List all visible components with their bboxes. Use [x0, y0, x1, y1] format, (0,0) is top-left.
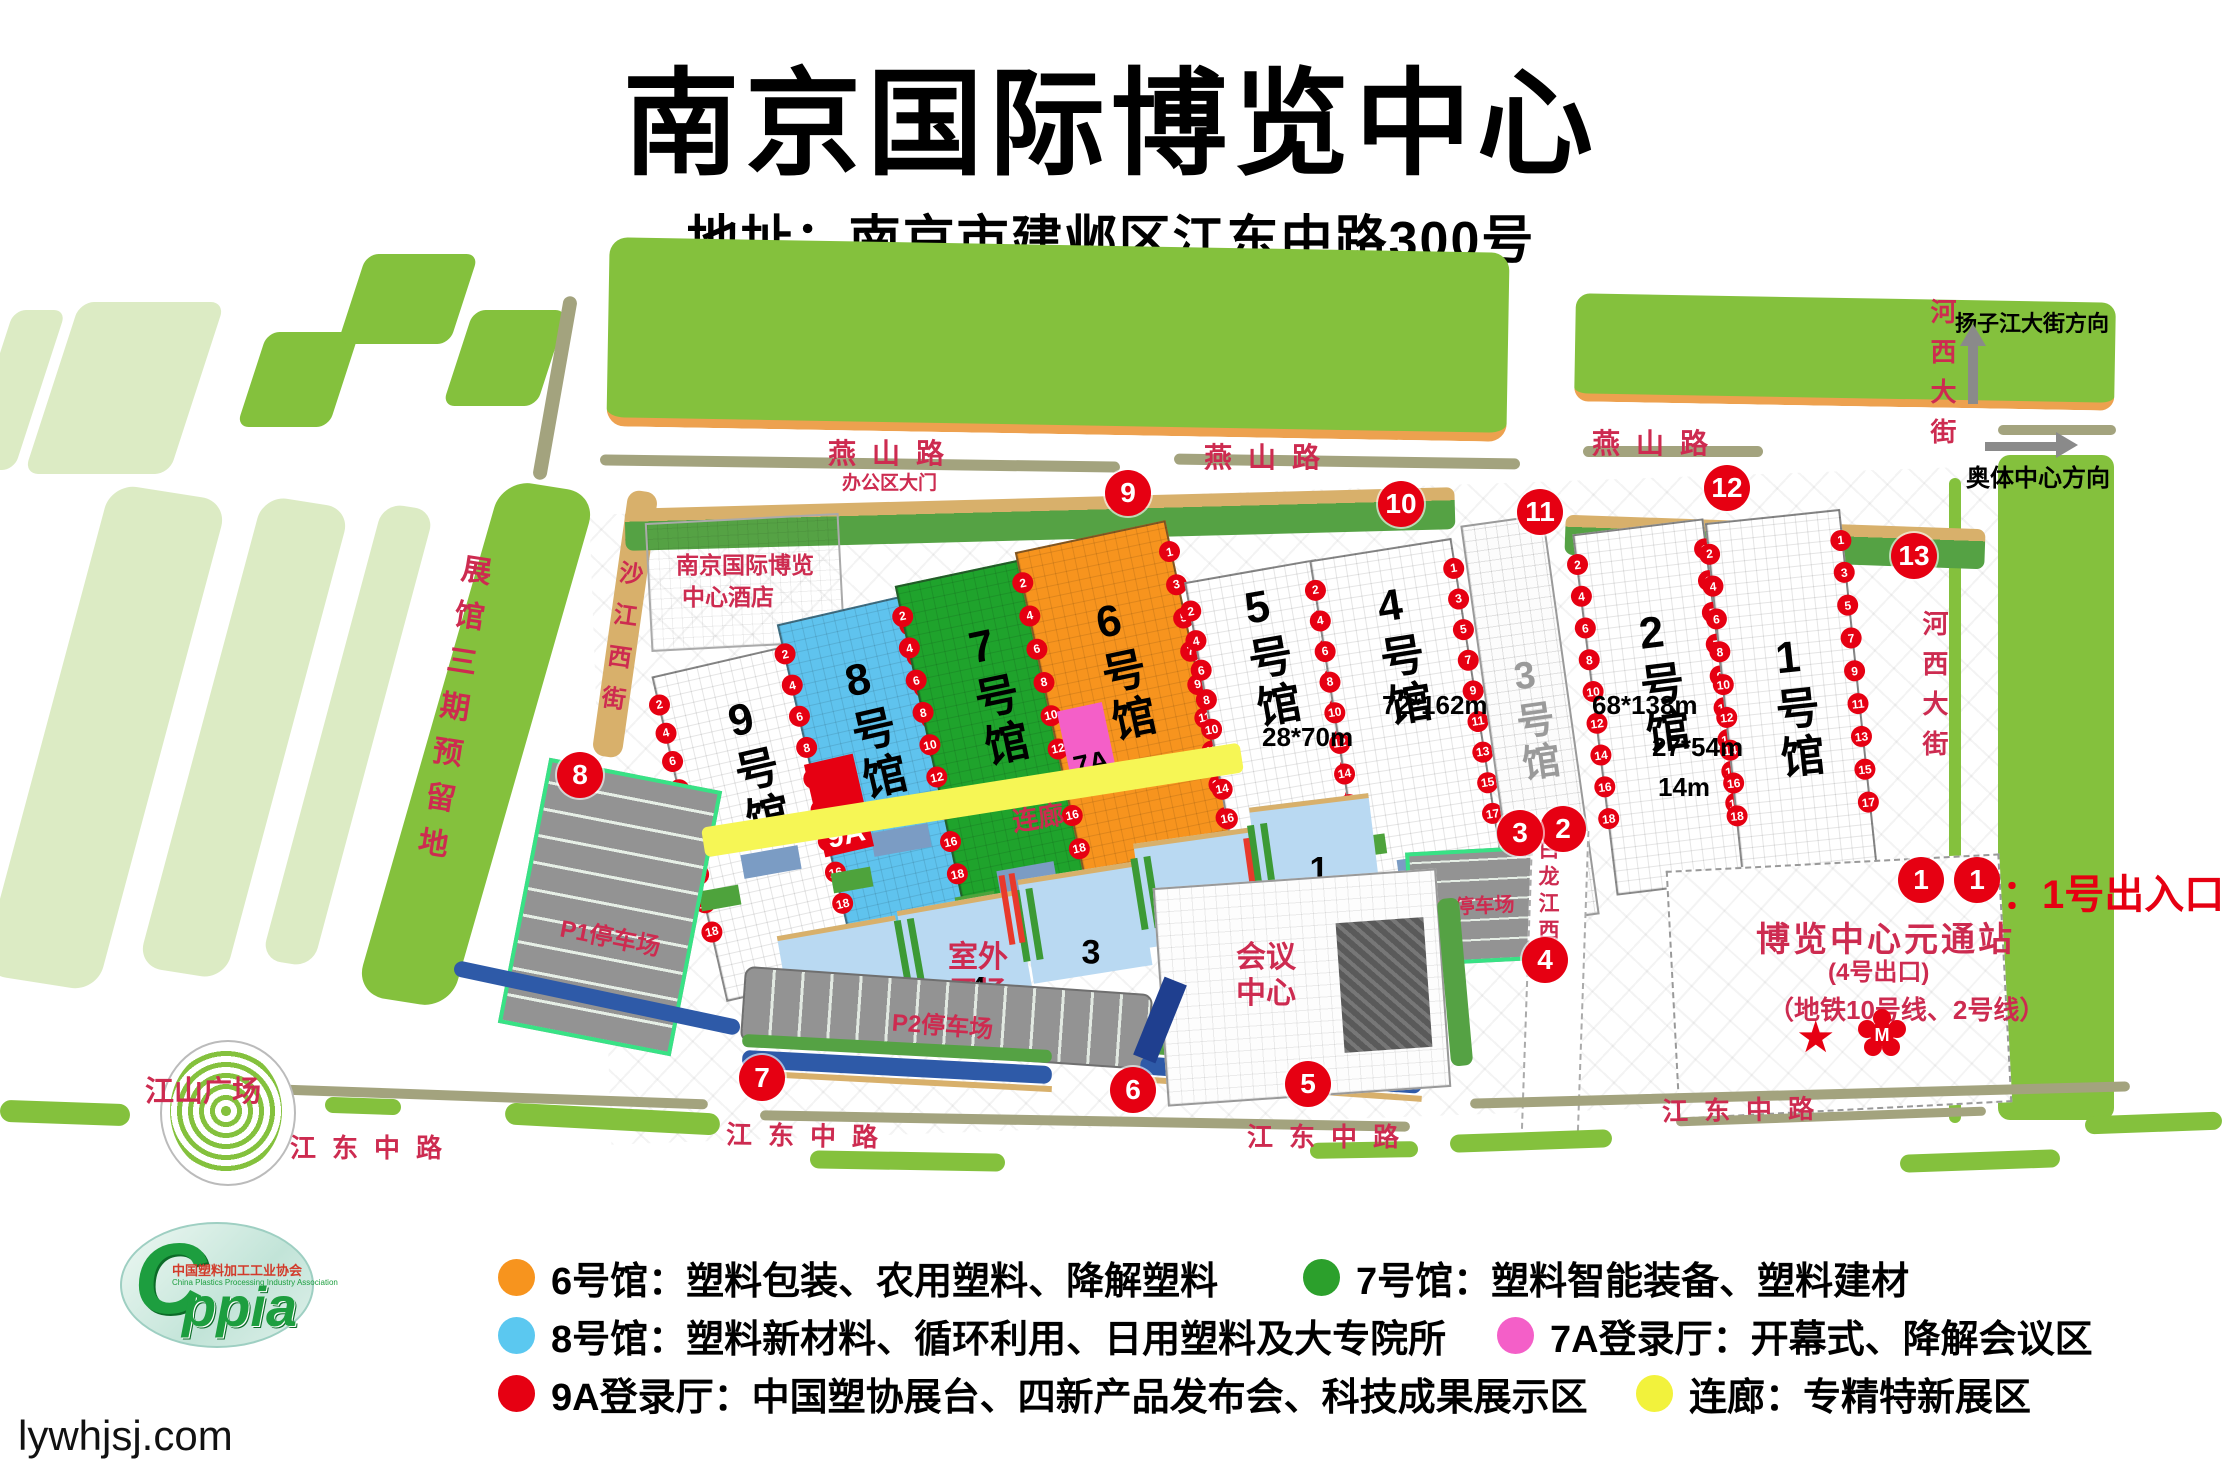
gate-number-dot: 6: [1024, 637, 1049, 662]
station-exit: (4号出口): [1828, 952, 1929, 987]
entrance-marker-12: 12: [1704, 465, 1750, 511]
legend-item-hall9a: 9A登录厅：中国塑协展台、四新产品发布会、科技成果展示区: [498, 1366, 1588, 1421]
map-shape: [606, 237, 1509, 442]
gate-number-dot: 2: [1566, 553, 1589, 576]
hall-5-label: 5号馆: [1230, 579, 1301, 734]
legend-dot-hall7a: [1497, 1317, 1534, 1354]
hall-1-label: 1号馆: [1762, 630, 1824, 783]
gate-number-dot: 1: [1829, 528, 1852, 551]
entrance-marker-4: 4: [1522, 937, 1568, 983]
dim-hall4: 72*162m: [1382, 690, 1488, 721]
gate-number-dot: 17: [1857, 791, 1880, 814]
dim-hall5: 28*70m: [1262, 722, 1353, 753]
gate-number-dot: 6: [1574, 616, 1597, 639]
gate-number-dot: 6: [1705, 608, 1728, 631]
road-label-yanshan-3: 燕山路: [1592, 422, 1724, 462]
gate-number-dot: 1: [1442, 556, 1466, 580]
gate-number-dot: 4: [897, 636, 922, 661]
entrance-marker-5: 5: [1285, 1061, 1331, 1107]
map-shape: [1900, 1149, 2061, 1173]
gate-number-dot: 18: [1067, 836, 1092, 861]
entrance-note-text: ：1号出入口: [2002, 862, 2222, 920]
gate-number-dot: 9: [1843, 660, 1866, 683]
legend-text-hall9a: 9A登录厅：中国塑协展台、四新产品发布会、科技成果展示区: [551, 1366, 1588, 1421]
map-shape: [237, 332, 360, 427]
road-label-yanshan-1: 燕山路: [828, 432, 960, 472]
gate-number-dot: 7: [1456, 648, 1480, 672]
legend-text-hall6: 6号馆：塑料包装、农用塑料、降解塑料: [551, 1250, 1218, 1305]
gate-number-dot: 8: [1031, 670, 1056, 695]
gate-number-dot: 15: [1853, 758, 1876, 781]
dim-hall1: 27*54m: [1652, 732, 1743, 763]
gate-number-dot: 4: [1017, 603, 1042, 628]
legend-dot-hall8: [498, 1317, 535, 1354]
gate-number-dot: 16: [938, 829, 963, 854]
gate-number-dot: 6: [660, 749, 685, 774]
entrance-note-marker: 1: [1954, 857, 2000, 903]
road-label-jiangdong-4: 江东中路: [1662, 1089, 1831, 1129]
road-label-hexi-2: 河西大街: [1916, 610, 1953, 770]
legend-text-hall8: 8号馆：塑料新材料、循环利用、日用塑料及大专院所: [551, 1308, 1446, 1363]
gate-number-dot: 2: [890, 604, 915, 629]
gate-number-dot: 3: [1446, 587, 1470, 611]
gate-number-dot: 11: [1847, 692, 1870, 715]
gate-number-dot: 8: [794, 735, 819, 760]
entrance-marker-13: 13: [1891, 533, 1937, 579]
entrance-marker-11: 11: [1517, 489, 1563, 535]
map-shape: [2085, 1112, 2222, 1135]
gate-number-dot: 2: [1179, 599, 1203, 623]
outdoor-lot-3: 3: [1082, 934, 1101, 973]
legend-dot-hall7: [1303, 1259, 1340, 1296]
gate-number-dot: 4: [1308, 609, 1332, 633]
gate-number-dot: 14: [1589, 743, 1612, 766]
hall-3-label: 3号馆: [1501, 653, 1559, 787]
gate-number-dot: 2: [772, 641, 797, 666]
legend-text-corridor: 连廊：专精特新展区: [1689, 1366, 2031, 1421]
site-map: 燕山路 燕山路 燕山路 河西大街 河西大街 扬子江大街方向 奥体中心方向 展馆三…: [0, 290, 2222, 1210]
office-gate-label: 办公区大门: [842, 468, 937, 495]
gate-number-dot: 18: [699, 919, 724, 944]
map-shape: [1450, 1129, 1613, 1153]
road-label-yanshan-2: 燕山路: [1204, 436, 1336, 476]
gate-number-dot: 18: [830, 891, 855, 916]
entrance-marker-3: 3: [1497, 810, 1543, 856]
gate-number-dot: 16: [1593, 775, 1616, 798]
legend-item-hall7a: 7A登录厅：开幕式、降解会议区: [1497, 1308, 2093, 1363]
gate-number-dot: 16: [1215, 806, 1239, 830]
legend-dot-corridor: [1636, 1375, 1673, 1412]
gate-number-dot: 7: [1840, 627, 1863, 650]
up-arrow-icon: [1968, 342, 1978, 404]
gate-number-dot: 10: [1323, 701, 1347, 725]
gate-number-dot: 4: [780, 672, 805, 697]
gate-number-dot: 18: [945, 862, 970, 887]
gate-number-dot: 10: [1712, 673, 1735, 696]
entrance-marker-8: 8: [557, 752, 603, 798]
map-shape: [325, 1097, 402, 1116]
hotel-label-line1: 南京国际博览: [676, 546, 814, 580]
map-shape: [0, 1100, 130, 1127]
gate-number-dot: 2: [1698, 542, 1721, 565]
parking-p2-label: P2停车场: [891, 1003, 995, 1045]
gate-number-dot: 12: [1715, 706, 1738, 729]
gate-number-dot: 4: [1570, 585, 1593, 608]
gate-number-dot: 2: [1010, 570, 1035, 595]
gate-number-dot: 16: [1722, 772, 1745, 795]
gate-number-dot: 5: [1451, 617, 1475, 641]
metro-logo-icon: M: [1856, 1008, 1908, 1060]
gate-number-dot: 6: [1189, 658, 1213, 682]
gate-number-dot: 6: [787, 704, 812, 729]
gate-number-dot: 14: [1333, 762, 1357, 786]
conference-label-line2: 中心: [1236, 968, 1296, 1012]
gate-number-dot: 6: [1313, 639, 1337, 663]
entrance-marker-10: 10: [1378, 481, 1424, 527]
gate-number-dot: 4: [653, 720, 678, 745]
gate-number-dot: 4: [1184, 629, 1208, 653]
hall-7-label: 7号馆: [953, 618, 1029, 773]
gate-number-dot: 4: [1701, 575, 1724, 598]
gate-number-dot: 6: [904, 668, 929, 693]
right-arrow-icon: [1985, 442, 2059, 451]
gate-number-dot: 18: [1726, 805, 1749, 828]
gate-number-dot: 13: [1850, 725, 1873, 748]
conference-auditorium: [1336, 917, 1433, 1053]
legend-dot-hall6: [498, 1259, 535, 1296]
gate-number-dot: 2: [1303, 578, 1327, 602]
watermark: lywhjsj.com: [18, 1412, 233, 1460]
right-arrow-head-icon: [2056, 432, 2078, 458]
gate-number-dot: 8: [1708, 641, 1731, 664]
gate-number-dot: 14: [1210, 777, 1234, 801]
gate-number-dot: 8: [1318, 670, 1342, 694]
dim-hall2: 68*138m: [1592, 690, 1698, 721]
legend-text-hall7: 7号馆：塑料智能装备、塑料建材: [1356, 1250, 1909, 1305]
entrance-marker-7: 7: [739, 1055, 785, 1101]
entrance-marker-1: 1: [1898, 857, 1944, 903]
gate-number-dot: 12: [924, 765, 949, 790]
gate-number-dot: 2: [647, 692, 672, 717]
up-arrow-head-icon: [1960, 324, 1986, 346]
legend-item-hall6: 6号馆：塑料包装、农用塑料、降解塑料: [498, 1250, 1218, 1305]
svg-text:M: M: [1875, 1025, 1890, 1045]
page-title: 南京国际博览中心: [0, 30, 2222, 198]
entrance-marker-9: 9: [1105, 470, 1151, 516]
gate-number-dot: 8: [1194, 688, 1218, 712]
gate-number-dot: 1: [1157, 539, 1182, 564]
legend-item-hall7: 7号馆：塑料智能装备、塑料建材: [1303, 1250, 1909, 1305]
cppia-logo: C 中国塑料加工工业协会 China Plastics Processing I…: [120, 1222, 310, 1344]
legend-item-corridor: 连廊：专精特新展区: [1636, 1366, 2031, 1421]
dim-hall1b: 14m: [1658, 772, 1710, 803]
legend-dot-hall9a: [498, 1375, 535, 1412]
gate-number-dot: 10: [918, 733, 943, 758]
gate-number-dot: 8: [911, 700, 936, 725]
star-icon: ★: [1796, 1016, 1835, 1060]
expo-map-page: 南京国际博览中心 地址：南京市建邺区江东中路300号 燕山路 燕山路 燕山路 河…: [0, 0, 2222, 1476]
jiangshan-label: 江山广场: [145, 1068, 261, 1110]
direction-aoti: 奥体中心方向: [1966, 458, 2110, 493]
entrance-marker-6: 6: [1110, 1067, 1156, 1113]
legend-item-hall8: 8号馆：塑料新材料、循环利用、日用塑料及大专院所: [498, 1308, 1446, 1363]
hotel-label-line2: 中心酒店: [682, 578, 774, 612]
jiangshan-rings: [170, 1048, 282, 1174]
gate-number-dot: 5: [1836, 594, 1859, 617]
entrance-marker-2: 2: [1540, 806, 1586, 852]
road-label-jiangdong-1: 江东中路: [290, 1128, 458, 1165]
cppia-big-text: ppia: [182, 1274, 297, 1339]
gate-number-dot: 18: [1597, 807, 1620, 830]
road-label-jiangdong-2: 江东中路: [726, 1115, 895, 1155]
road-label-jiangdong-3: 江东中路: [1247, 1117, 1415, 1154]
gate-number-dot: 8: [1578, 648, 1601, 671]
gate-number-dot: 3: [1833, 561, 1856, 584]
gate-number-dot: 10: [1199, 717, 1223, 741]
legend-text-hall7a: 7A登录厅：开幕式、降解会议区: [1550, 1308, 2093, 1363]
